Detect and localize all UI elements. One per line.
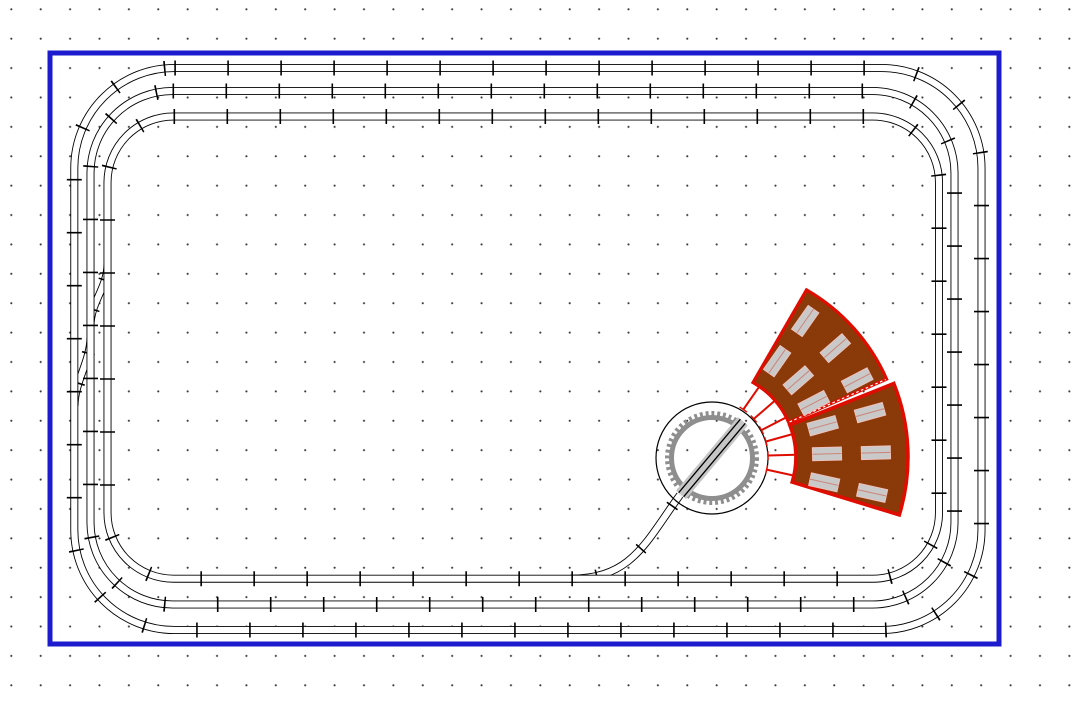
turntable[interactable] — [656, 402, 768, 514]
roundhouse-skylight — [861, 446, 890, 460]
grid-background — [0, 0, 1090, 706]
roundhouse-skylight — [812, 447, 841, 461]
stall-track[interactable] — [754, 401, 775, 419]
stall-track[interactable] — [768, 455, 796, 456]
turntable-bridge-rail — [679, 419, 741, 493]
track-segment — [570, 495, 680, 579]
stall-track[interactable] — [766, 434, 793, 442]
track-plan-canvas — [0, 0, 1090, 706]
stall-track-buffer — [766, 465, 768, 474]
turntable-lead-track[interactable] — [570, 495, 680, 579]
stall-track[interactable] — [761, 417, 786, 430]
stall-track[interactable] — [767, 470, 794, 476]
roundhouse[interactable] — [740, 290, 908, 515]
stall-track[interactable] — [743, 387, 759, 410]
turntable-bridge-rail — [684, 423, 746, 497]
